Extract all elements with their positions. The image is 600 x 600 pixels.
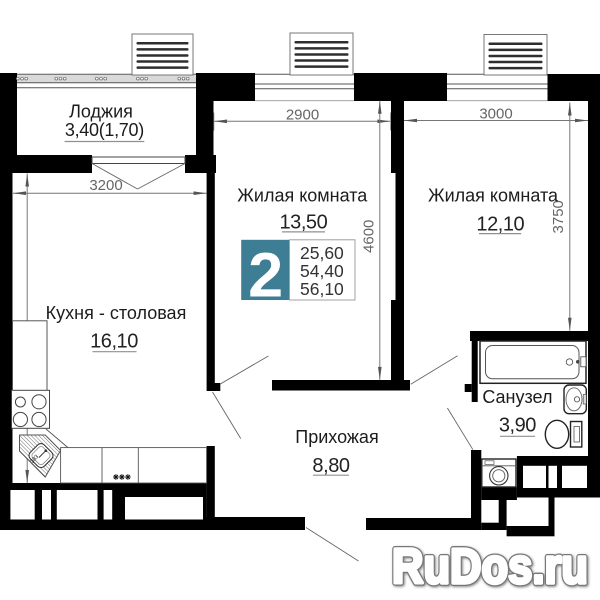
svg-text:4600: 4600 [361, 220, 378, 253]
svg-text:13,50: 13,50 [279, 212, 327, 234]
svg-text:Прихожая: Прихожая [295, 427, 378, 447]
svg-text:Санузел: Санузел [482, 387, 552, 407]
svg-text:Жилая комната: Жилая комната [428, 185, 559, 205]
svg-text:56,10: 56,10 [300, 279, 344, 299]
svg-text:25,60: 25,60 [300, 243, 344, 263]
svg-text:2: 2 [248, 241, 283, 311]
svg-text:3,90: 3,90 [499, 415, 536, 437]
svg-text:Жилая комната: Жилая комната [237, 185, 368, 205]
svg-text:2900: 2900 [286, 107, 319, 124]
svg-text:Лоджия: Лоджия [69, 102, 133, 122]
svg-text:12,10: 12,10 [476, 213, 524, 235]
svg-text:54,40: 54,40 [300, 261, 344, 281]
svg-text:Кухня - столовая: Кухня - столовая [46, 303, 187, 323]
svg-text:16,10: 16,10 [90, 331, 138, 353]
svg-text:3,40(1,70): 3,40(1,70) [65, 120, 144, 140]
svg-text:8,80: 8,80 [312, 455, 349, 477]
svg-text:RuDos.ru: RuDos.ru [392, 540, 588, 594]
svg-text:3000: 3000 [479, 106, 512, 123]
svg-text:3200: 3200 [89, 177, 122, 194]
